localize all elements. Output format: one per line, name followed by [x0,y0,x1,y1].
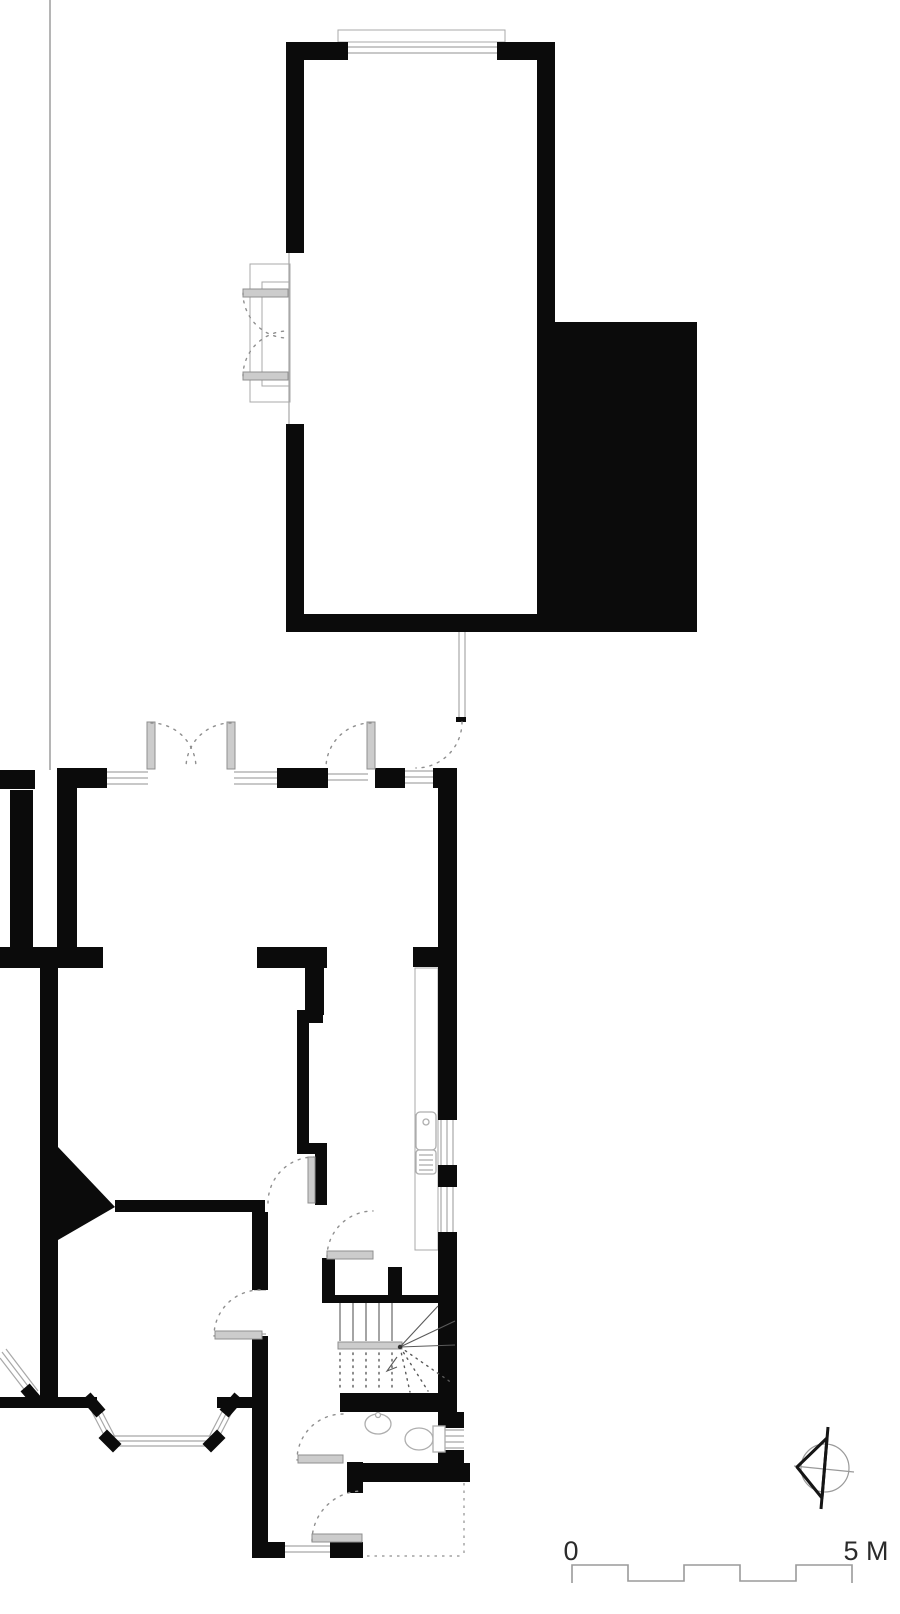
door-leaf [243,289,288,297]
walls [0,42,697,1558]
stair-handrail [338,1342,402,1349]
floor-plan-drawing: 0 5 M [0,0,900,1614]
neighbour-wall [10,790,33,947]
window-sill-outline [338,30,505,42]
basin-tap [376,1413,381,1418]
door-leaves [147,289,402,1542]
winder-pivot [398,1345,402,1349]
toilet-bowl [405,1428,433,1450]
floor-plan-sheet: 0 5 M [0,0,900,1614]
porch-canopy-outline [367,1483,464,1556]
solid-massing-block [537,322,697,632]
toilet-cistern [433,1426,445,1452]
chimney-breast [58,1147,115,1240]
scale-bar-ruler [572,1565,852,1583]
door-swing-arcs [151,293,462,1541]
north-arrow-icon [794,1427,854,1509]
scale-bar: 0 5 M [563,1536,888,1583]
winder-tread [400,1306,438,1347]
door-frame-outline [250,264,290,402]
kitchen-sink [416,1112,436,1150]
scale-end-label: 5 M [843,1536,888,1566]
scale-zero-label: 0 [563,1536,578,1566]
kitchen-counter [415,968,438,1250]
sink-tap [423,1119,429,1125]
neighbour-wall [0,770,35,789]
